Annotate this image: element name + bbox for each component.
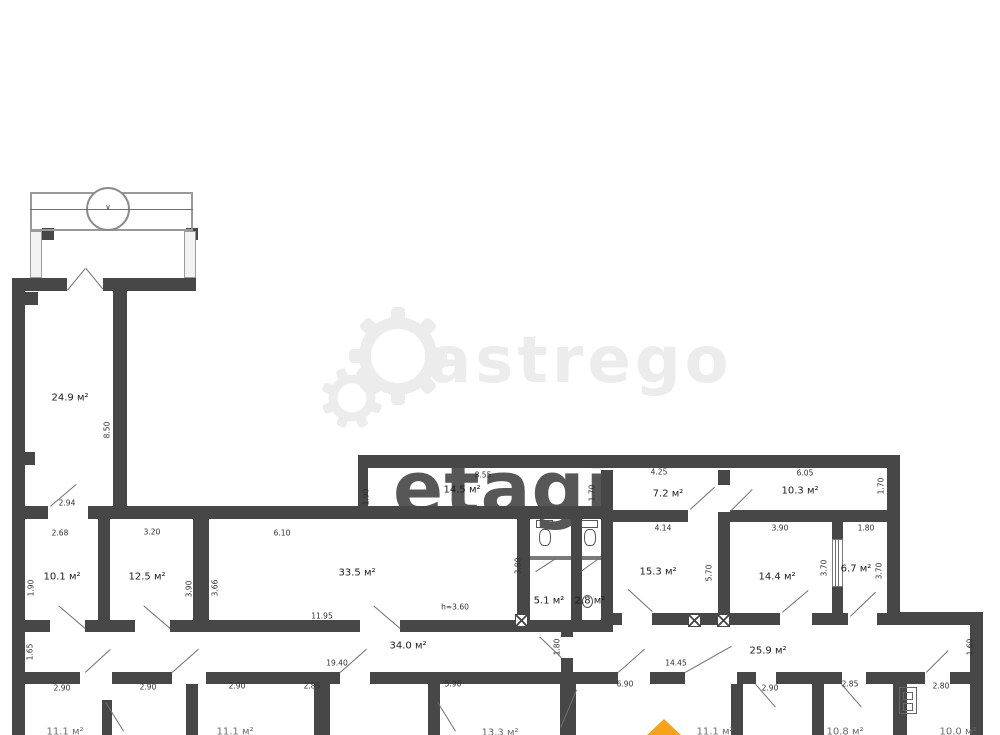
etagi-logo-mark xyxy=(646,719,682,735)
floorplan-page: astrego etagi 24.9 м²10.1 м²12.5 м²33.5 … xyxy=(0,0,1000,735)
logo-layer xyxy=(0,0,1000,735)
